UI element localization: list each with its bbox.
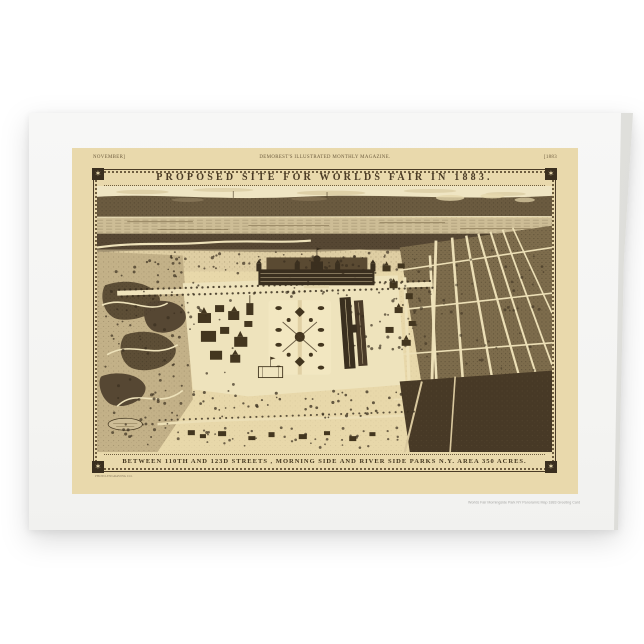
map-picture	[97, 186, 552, 454]
frame-corner-star-icon: ✶	[545, 168, 557, 180]
header-year: [1883	[544, 155, 557, 160]
page-header: NOVEMBER] DEMOREST'S ILLUSTRATED MONTHLY…	[93, 152, 557, 162]
frame-corner-star-icon: ✶	[545, 461, 557, 473]
engraver-credit: PHOTO-ENGRAVING CO.	[95, 475, 132, 478]
header-month: NOVEMBER]	[93, 155, 125, 160]
map-title: PROPOSED SITE FOR WORLDS FAIR IN 1883.	[104, 172, 545, 186]
formal-gardens	[269, 300, 332, 374]
map-frame: ✶ ✶ ✶ ✶ PROPOSED SITE FOR WORLDS FAIR IN…	[93, 169, 556, 472]
river	[97, 216, 552, 233]
product-photo: NOVEMBER] DEMOREST'S ILLUSTRATED MONTHLY…	[0, 0, 644, 644]
map-illustration	[97, 186, 552, 454]
frame-corner-star-icon: ✶	[92, 168, 104, 180]
palace-dome	[313, 255, 320, 262]
map-caption: BETWEEN 110TH AND 123D STREETS , MORNING…	[104, 454, 545, 469]
riverside-woods	[400, 371, 552, 452]
product-fine-print: Worlds Fair Morningside Park NY Panorami…	[468, 501, 570, 505]
header-magazine-title: DEMOREST'S ILLUSTRATED MONTHLY MAGAZINE.	[135, 155, 515, 160]
frame-corner-star-icon: ✶	[92, 461, 104, 473]
